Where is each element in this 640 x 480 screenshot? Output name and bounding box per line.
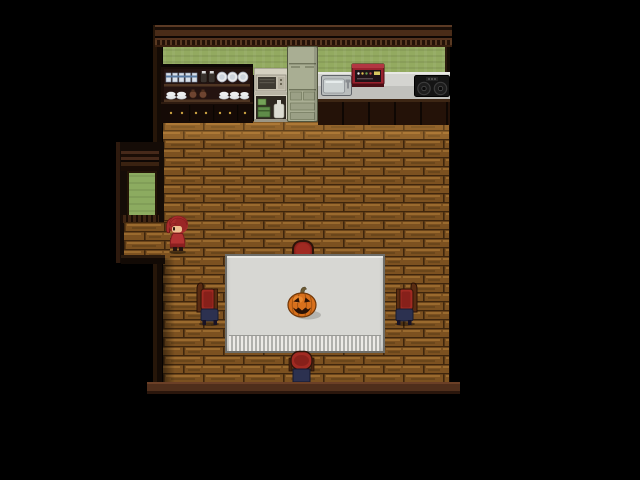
pumpkin-jack-o-lantern[interactable] (285, 286, 323, 322)
alcove-trim (121, 151, 159, 171)
plates (217, 72, 248, 82)
kitchen-sink[interactable] (321, 75, 352, 96)
tablecloth-fringe (229, 335, 381, 351)
floor-wall-shadow (163, 258, 175, 383)
character-sprite[interactable] (164, 215, 191, 254)
baseboard (147, 382, 460, 394)
crown-trim (155, 25, 452, 47)
dentil-trim (155, 40, 452, 45)
microwave-cart[interactable] (254, 68, 288, 122)
under-counter-cabinets (318, 99, 450, 125)
blue-cups (166, 73, 197, 82)
dish-hutch[interactable] (161, 64, 253, 123)
red-appliance[interactable] (351, 61, 385, 87)
chair-east[interactable] (390, 281, 421, 326)
alcove-lower-edge (121, 255, 165, 264)
chair-west[interactable] (193, 281, 224, 326)
stove-top[interactable] (414, 75, 450, 97)
refrigerator[interactable] (287, 46, 318, 122)
doorway-to-outside[interactable] (127, 171, 157, 221)
game-viewport[interactable] (0, 0, 640, 480)
